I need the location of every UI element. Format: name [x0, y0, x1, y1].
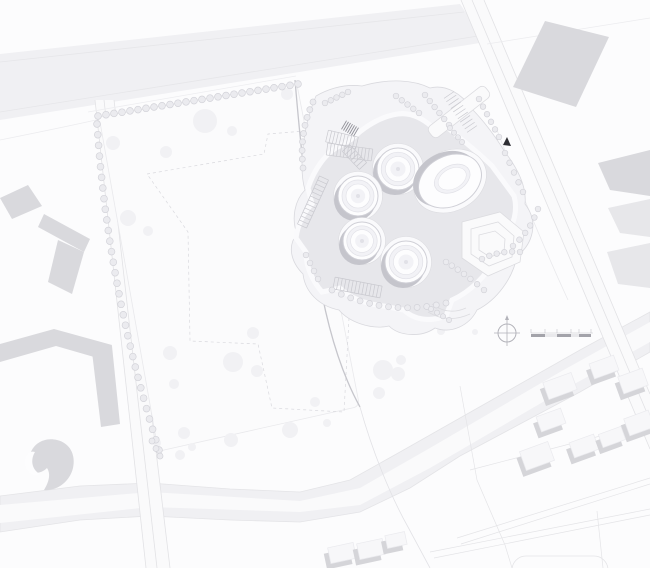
round-building [339, 218, 386, 266]
site-plan-drawing [0, 0, 650, 568]
site-plan-canvas [0, 0, 650, 568]
round-building [381, 237, 432, 289]
round-building [334, 172, 383, 222]
